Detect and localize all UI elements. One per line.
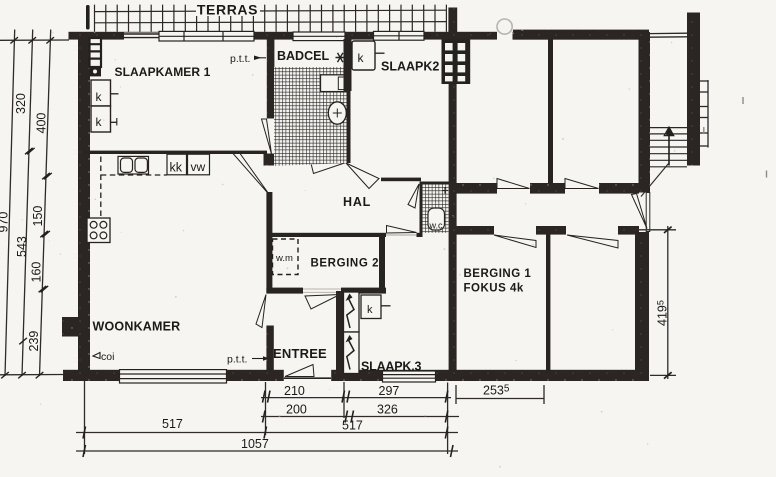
svg-text:BADCEL: BADCEL — [277, 49, 329, 63]
svg-text:FOKUS 4k: FOKUS 4k — [464, 283, 524, 295]
svg-text:w.c: w.c — [429, 221, 444, 231]
svg-text:w.m: w.m — [275, 253, 293, 264]
svg-text:coi: coi — [101, 351, 114, 363]
svg-text:SLAAPK.3: SLAAPK.3 — [361, 360, 421, 374]
svg-text:BERGING 1: BERGING 1 — [464, 268, 532, 280]
svg-text:BERGING 2: BERGING 2 — [311, 258, 380, 270]
svg-text:543: 543 — [15, 236, 29, 257]
svg-text:WOONKAMER: WOONKAMER — [93, 320, 181, 334]
svg-text:TERRAS: TERRAS — [197, 2, 258, 18]
svg-text:517: 517 — [342, 419, 363, 433]
svg-text:517: 517 — [162, 417, 183, 431]
svg-text:kk: kk — [170, 161, 183, 175]
svg-text:k: k — [96, 115, 103, 129]
svg-text:HAL: HAL — [343, 195, 371, 209]
svg-text:k: k — [367, 304, 373, 316]
svg-text:400: 400 — [35, 113, 49, 134]
svg-text:200: 200 — [286, 403, 307, 417]
svg-text:239: 239 — [27, 331, 41, 352]
svg-text:970: 970 — [0, 212, 11, 233]
svg-text:320: 320 — [14, 93, 28, 114]
svg-text:ENTREE: ENTREE — [273, 346, 327, 361]
svg-text:k: k — [96, 90, 103, 104]
svg-text:1057: 1057 — [241, 437, 269, 451]
svg-text:SLAAPKAMER 1: SLAAPKAMER 1 — [115, 65, 211, 79]
svg-text:p.t.t.: p.t.t. — [230, 53, 250, 65]
svg-text:150: 150 — [31, 206, 45, 227]
svg-text:vw: vw — [191, 160, 206, 174]
svg-text:p.t.t.: p.t.t. — [227, 354, 247, 366]
svg-text:SLAAPK2: SLAAPK2 — [381, 60, 439, 74]
svg-text:k: k — [358, 51, 365, 65]
svg-text:297: 297 — [379, 384, 400, 398]
svg-text:326: 326 — [377, 403, 398, 417]
svg-text:160: 160 — [30, 262, 44, 283]
svg-text:210: 210 — [284, 384, 305, 398]
